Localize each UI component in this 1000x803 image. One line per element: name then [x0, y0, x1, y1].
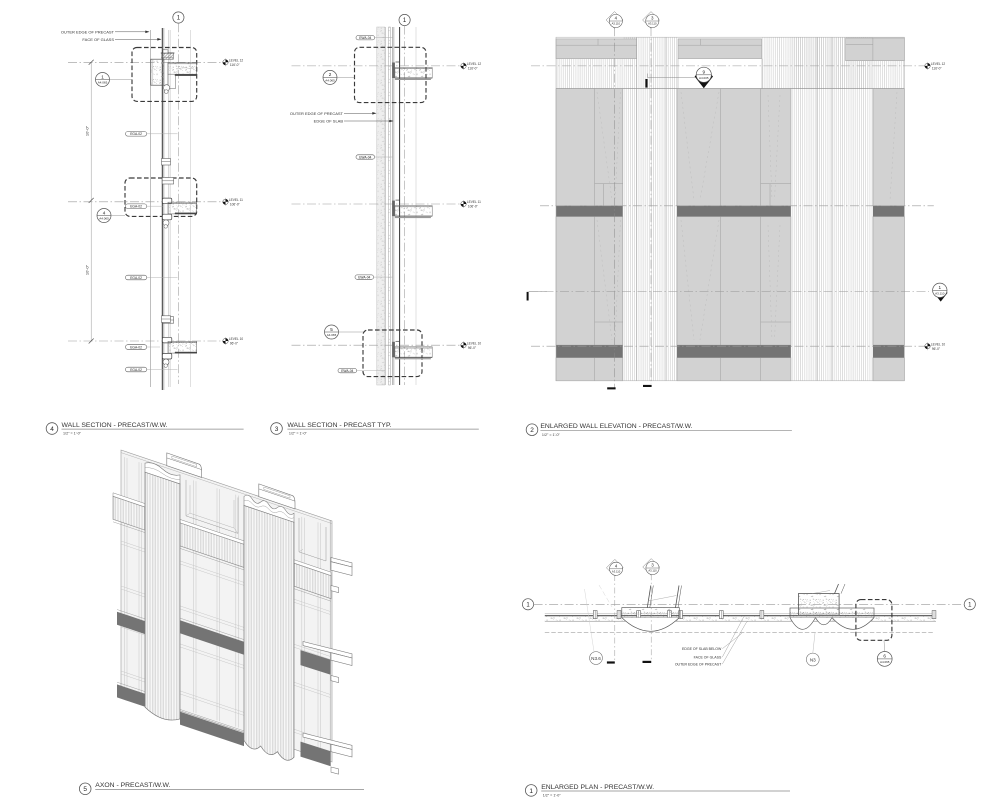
svg-text:ENLARGED WALL ELEVATION - PREC: ENLARGED WALL ELEVATION - PRECAST/W.W.: [540, 423, 692, 430]
svg-text:EGA-02: EGA-02: [130, 368, 142, 372]
svg-text:EGA-02: EGA-02: [130, 276, 142, 280]
svg-text:EWA-04: EWA-04: [359, 36, 371, 40]
svg-text:FACE OF GLASS: FACE OF GLASS: [694, 655, 722, 659]
svg-text:LEVEL 12: LEVEL 12: [229, 58, 243, 62]
svg-text:10'-0": 10'-0": [85, 125, 90, 136]
svg-text:3: 3: [275, 426, 279, 433]
svg-text:2: 2: [329, 72, 332, 77]
svg-text:LEVEL 11: LEVEL 11: [229, 198, 243, 202]
svg-text:A3.110: A3.110: [648, 569, 657, 573]
svg-text:A4.065: A4.065: [99, 217, 109, 221]
svg-text:6: 6: [883, 654, 886, 659]
svg-text:5: 5: [330, 327, 333, 332]
svg-text:96'-0": 96'-0": [230, 342, 238, 346]
svg-text:4: 4: [103, 210, 106, 215]
svg-text:1/2" = 1'-0": 1/2" = 1'-0": [543, 794, 562, 798]
svg-text:1/2" = 1'-0": 1/2" = 1'-0": [63, 432, 82, 436]
svg-text:ENLARGED PLAN - PRECAST/W.W.: ENLARGED PLAN - PRECAST/W.W.: [541, 784, 654, 791]
svg-text:EDGE OF SLAB BELOW: EDGE OF SLAB BELOW: [682, 647, 722, 651]
svg-text:EGA-02: EGA-02: [130, 345, 142, 349]
svg-text:EGA-02: EGA-02: [130, 205, 142, 209]
svg-text:OUTER EDGE OF PRECAST: OUTER EDGE OF PRECAST: [290, 111, 344, 116]
svg-text:OUTER EDGE OF PRECAST: OUTER EDGE OF PRECAST: [61, 29, 115, 34]
svg-text:9: 9: [703, 70, 706, 75]
svg-text:LEVEL 12: LEVEL 12: [931, 62, 945, 66]
svg-text:A4.065: A4.065: [880, 660, 890, 664]
svg-text:EWA-04: EWA-04: [359, 155, 371, 159]
svg-text:5: 5: [83, 786, 87, 793]
svg-text:LEVEL 10: LEVEL 10: [931, 342, 945, 346]
svg-text:106'-0": 106'-0": [468, 205, 478, 209]
svg-text:4: 4: [50, 426, 54, 433]
svg-text:96'-0": 96'-0": [468, 346, 476, 350]
svg-text:1/2" = 1'-0": 1/2" = 1'-0": [289, 432, 308, 436]
svg-text:1: 1: [101, 74, 104, 79]
svg-text:OUTER EDGE OF PRECAST: OUTER EDGE OF PRECAST: [675, 662, 722, 666]
svg-text:N3: N3: [810, 657, 816, 662]
svg-text:EWA-04: EWA-04: [358, 275, 370, 279]
svg-text:116'-0": 116'-0": [468, 67, 478, 71]
svg-text:EGA-02: EGA-02: [130, 132, 142, 136]
svg-text:116'-0": 116'-0": [230, 63, 240, 67]
svg-text:A3.110: A3.110: [612, 569, 621, 573]
svg-text:1: 1: [529, 788, 533, 795]
svg-text:1/2" = 1'-0": 1/2" = 1'-0": [542, 433, 561, 437]
svg-text:A3.110: A3.110: [935, 292, 945, 296]
svg-text:96'-0": 96'-0": [932, 347, 940, 351]
svg-text:A4.065: A4.065: [325, 79, 335, 83]
svg-text:10'-0": 10'-0": [85, 264, 90, 275]
svg-text:WALL SECTION - PRECAST/W.W.: WALL SECTION - PRECAST/W.W.: [62, 422, 168, 429]
svg-text:LEVEL 10: LEVEL 10: [467, 341, 481, 345]
svg-text:2: 2: [530, 427, 534, 434]
svg-text:LEVEL 12: LEVEL 12: [467, 62, 481, 66]
svg-text:1: 1: [939, 285, 942, 290]
svg-text:A3.110: A3.110: [648, 22, 657, 26]
svg-text:EWA-04: EWA-04: [341, 369, 353, 373]
svg-text:N3.6: N3.6: [591, 656, 601, 661]
svg-text:A3.110: A3.110: [612, 22, 621, 26]
svg-text:A4.065: A4.065: [327, 333, 337, 337]
svg-text:LEVEL 10: LEVEL 10: [229, 337, 243, 341]
svg-text:106'-0": 106'-0": [230, 203, 240, 207]
svg-text:LEVEL 11: LEVEL 11: [467, 200, 481, 204]
svg-text:116'-0": 116'-0": [932, 67, 942, 71]
svg-text:A4.005: A4.005: [699, 76, 709, 80]
svg-text:FACE OF GLASS: FACE OF GLASS: [82, 37, 114, 42]
svg-text:WALL SECTION - PRECAST TYP.: WALL SECTION - PRECAST TYP.: [287, 422, 391, 429]
svg-text:AXON - PRECAST/W.W.: AXON - PRECAST/W.W.: [95, 782, 170, 789]
svg-text:A4.065: A4.065: [98, 81, 108, 85]
svg-text:EDGE OF SLAB: EDGE OF SLAB: [314, 119, 344, 124]
